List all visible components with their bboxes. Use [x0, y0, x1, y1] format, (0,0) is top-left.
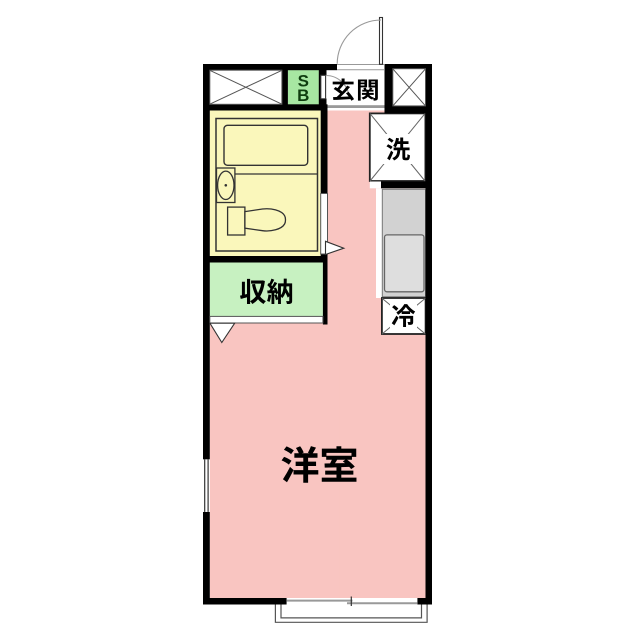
svg-text:B: B [297, 86, 309, 105]
